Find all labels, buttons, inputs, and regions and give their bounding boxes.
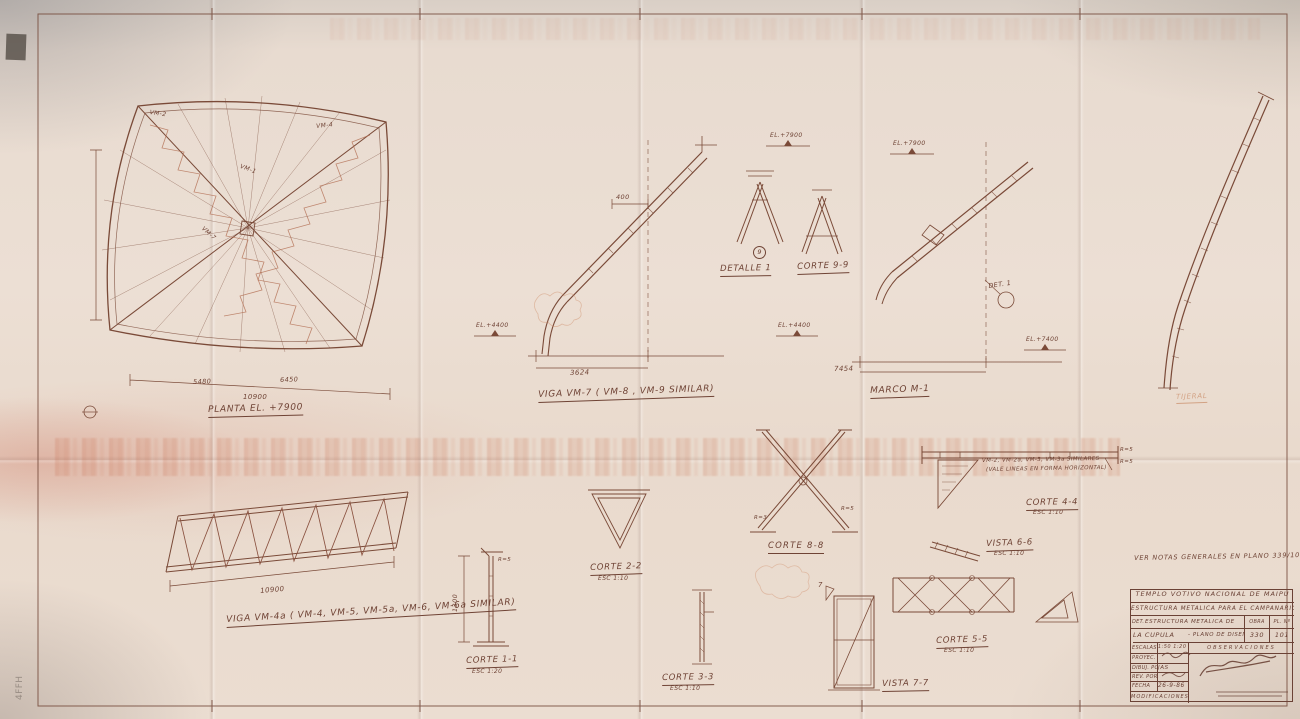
elevation-label: EL.+4400 <box>476 323 509 329</box>
planta-caption: PLANTA EL. +7900 <box>208 404 303 418</box>
title-block-dibu-value: JAS <box>1157 664 1188 673</box>
elevation-label: EL.+7400 <box>1026 337 1059 343</box>
title-block-pl-label: PL. Nº <box>1269 616 1294 629</box>
viga-vm7-dim-top: 400 <box>616 194 630 201</box>
detalle-1-marker: 9 <box>753 246 766 259</box>
title-block-divider <box>1188 654 1189 703</box>
title-block-fecha-label: FECHA <box>1131 682 1157 692</box>
planta-dim-a: 5480 <box>193 378 211 385</box>
title-block-observaciones-label: OBSERVACIONES <box>1188 643 1294 654</box>
corte-8-8-note-right: R=5 <box>841 507 854 513</box>
corte-8-8-caption: CORTE 8-8 <box>768 542 824 554</box>
planta-dim-total: 10900 <box>243 394 267 401</box>
fold-crease <box>637 0 644 719</box>
title-block-escalas-value: 1:50 1:20 1:10 <box>1157 643 1188 654</box>
title-block-project-line1: TEMPLO VOTIVO NACIONAL DE MAIPU <box>1131 590 1294 603</box>
corte-4-4-scale: ESC 1:10 <box>1033 510 1063 516</box>
detalle-1-caption: DETALLE 1 <box>720 264 772 276</box>
corte-3-3-caption: CORTE 3-3 <box>662 673 714 685</box>
tijeral-note: TIJERAL <box>1176 393 1208 404</box>
title-block-proy-label: PROYEC. POR <box>1131 654 1157 664</box>
ghost-print-band <box>330 18 1260 40</box>
corte-1-1-note: R=5 <box>498 558 511 564</box>
title-block-rev-label: REV. POR <box>1131 673 1157 682</box>
elevation-label: EL.+7900 <box>893 141 926 147</box>
title-block-modificaciones-label: MODIFICACIONES <box>1131 692 1188 703</box>
corner-registration-mark <box>6 34 27 61</box>
title-block-subject-line1: ESTRUCTURA METALICA DE <box>1145 616 1244 629</box>
title-block-escalas-label: ESCALAS <box>1131 643 1157 654</box>
vista-6-6-scale: ESC 1:10 <box>994 551 1024 557</box>
vista-7-7-marker: 7 <box>818 582 823 589</box>
title-block-rev-value <box>1157 673 1188 682</box>
corte-4-4-note-r2: R=5 <box>1120 460 1133 466</box>
title-block-obra-label: OBRA <box>1244 616 1269 629</box>
vista-7-7-caption: VISTA 7-7 <box>882 679 929 691</box>
title-block-dibu-label: DIBUJ. POR <box>1131 664 1157 673</box>
corte-1-1-scale: ESC 1:20 <box>472 669 502 675</box>
scanned-drawing-sheet: PLANTA EL. +7900 10900 5480 6450 VM-2 VM… <box>0 0 1300 719</box>
title-block-obra-value: 330 <box>1244 629 1269 643</box>
corte-4-4-note-r1: R=5 <box>1120 448 1133 454</box>
title-block-project-line2: ESTRUCTURA METALICA PARA EL CAMPANARIO <box>1131 603 1294 616</box>
corte-5-5-scale: ESC 1:10 <box>944 648 974 654</box>
title-block-pl-value: 101 <box>1269 629 1294 643</box>
planta-dim-b: 6450 <box>280 376 298 383</box>
corte-1-1-dim: 1300 <box>452 594 459 612</box>
fold-crease <box>209 0 216 719</box>
fold-crease <box>859 0 866 719</box>
elevation-label: EL.+4400 <box>778 323 811 329</box>
corte-9-9-caption: CORTE 9-9 <box>797 261 849 274</box>
fold-crease <box>1077 0 1084 719</box>
corte-1-1-caption: CORTE 1-1 <box>466 655 518 668</box>
corte-2-2-caption: CORTE 2-2 <box>590 562 642 575</box>
title-block: TEMPLO VOTIVO NACIONAL DE MAIPU ESTRUCTU… <box>1130 589 1293 702</box>
title-block-subject-line2: LA CUPULA <box>1133 629 1188 643</box>
paper-background <box>0 0 1300 719</box>
viga-vm7-dim: 3624 <box>570 369 590 377</box>
marco-m1-caption: MARCO M-1 <box>870 385 930 399</box>
title-block-det-label: DET. <box>1131 616 1145 629</box>
corte-8-8-note-left: R=3 <box>754 516 767 522</box>
title-block-fecha-value: 26-9-86 <box>1157 682 1188 692</box>
corte-2-2-scale: ESC 1:10 <box>598 576 628 582</box>
title-block-proy-value <box>1157 654 1188 664</box>
pencil-margin-note: 4FFH <box>16 676 25 700</box>
marco-m1-dim: 7454 <box>834 366 854 373</box>
elevation-label: EL.+7900 <box>770 133 803 139</box>
corte-3-3-scale: ESC 1:10 <box>670 686 700 692</box>
ghost-print-band <box>55 438 1120 476</box>
title-block-subject-line2b: - PLANO DE DISEÑO <box>1188 629 1244 643</box>
